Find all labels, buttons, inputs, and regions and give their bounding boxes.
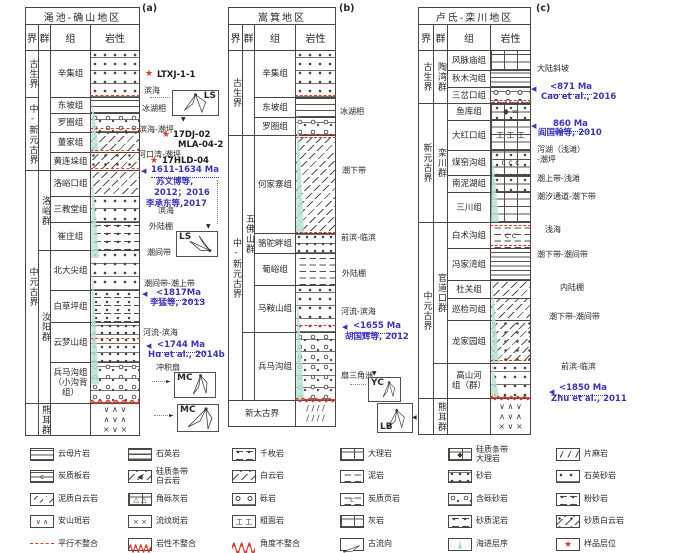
formation-name: 何家寨组 [258, 180, 292, 190]
formation-cell: 马鞍山组 [254, 285, 296, 333]
formation-name: 三川组 [456, 203, 482, 213]
formation-cell: 白术沟组 [447, 222, 491, 249]
section-b-header-formation: 组 [254, 24, 296, 51]
section-a-header-formation: 组 [50, 24, 91, 51]
legend-swatch-argillaceous-dolomite [30, 493, 54, 506]
formation-cell-empty [447, 398, 491, 435]
lithology-box [90, 97, 140, 114]
legend-swatch-carbonaceous-slate: c [30, 470, 54, 483]
legend-swatch-paleocurrent [340, 538, 364, 551]
lithology-box: ◆ ∞ [490, 103, 531, 121]
formation-cell: 黄连垛组 [50, 152, 91, 171]
group-cell: 栾川群 [433, 103, 448, 223]
legend-label: 炭质板岩 [58, 472, 90, 481]
formation-cell: 何家寨组 [254, 135, 296, 234]
section-c-header-era: 界 [418, 24, 434, 51]
legend-label: 砂岩 [476, 472, 492, 481]
legend-swatch-glyph: ◆ [449, 449, 471, 460]
facies-label: 潮下带-潮间带 [537, 250, 588, 260]
legend-swatch-mica-schist [30, 448, 54, 461]
formation-name: 三教堂组 [53, 205, 87, 215]
lithology-box [490, 175, 531, 193]
leader-line [154, 415, 168, 416]
era-label: 中-新元古界 [230, 238, 241, 299]
panel-label-a: (a) [142, 3, 157, 14]
formation-cell: 冯家湾组 [447, 248, 491, 281]
legend-swatch-dolomite [232, 470, 256, 483]
lithology-box [490, 87, 531, 104]
formation-name: 三岔口组 [452, 91, 486, 101]
formation-cell: 兵马沟组 （小沟背组） [50, 362, 91, 404]
formation-name: 冯家湾组 [452, 260, 486, 270]
formation-cell: 骆驼畔组 [254, 233, 296, 254]
facies-label: 潮下带-潮间带 [549, 312, 600, 322]
formation-name: 秋木沟组 [452, 74, 486, 84]
formation-name: 风脉庙组 [452, 56, 486, 66]
paleocurrent-rose-box: LS [176, 231, 218, 257]
legend-swatch-glyph: 工 工 [233, 516, 255, 527]
formation-cell: 风脉庙组 [447, 50, 491, 71]
legend-label: 片麻岩 [584, 450, 608, 459]
group-label: 洛峪群 [39, 196, 50, 226]
legend-label: 安山斑岩 [58, 517, 90, 526]
legend-label: 砾岩 [260, 495, 276, 504]
section-c-title: 卢氏-栾川地区 [418, 7, 531, 25]
formation-cell: 鱼库组 [447, 103, 491, 121]
legend-swatch-sandstone [448, 470, 472, 483]
formation-name: 东坡组 [262, 103, 288, 113]
section-c-header-formation: 组 [447, 24, 491, 51]
legend-swatch-glyph: c [31, 471, 53, 482]
reference-label: Hu et al., 2014b [148, 351, 225, 361]
formation-name: 崔庄组 [58, 232, 84, 242]
formation-name: 高山河 组（群） [452, 371, 486, 391]
formation-name: 煤窑沟组 [452, 158, 486, 168]
section-a-header-era: 界 [25, 24, 39, 51]
parallel-unconformity-line [90, 168, 140, 169]
formation-name: 云梦山组 [53, 338, 87, 348]
era-label: 古生界 [27, 59, 38, 89]
leader-line [217, 180, 218, 224]
age-arrow-icon: ◀ [141, 168, 146, 175]
era-header-label: 界 [231, 30, 241, 45]
legend-swatch-gneiss [556, 448, 580, 461]
legend-swatch-sample-horizon: ★ [556, 538, 580, 551]
panel-label-c: (c) [536, 3, 550, 14]
formation-cell: 崔庄组 [50, 222, 91, 251]
formation-cell: 煤窑沟组 [447, 150, 491, 176]
legend-label: 大理岩 [368, 450, 392, 459]
parallel-unconformity-line [295, 325, 336, 326]
age-arrow-icon: ◀ [531, 123, 536, 130]
lithology-box [490, 298, 531, 321]
facies-label: 浅海 [545, 225, 561, 235]
formation-cell: 兵马沟组 [254, 332, 296, 401]
rose-label: MC [180, 405, 196, 415]
formation-cell: 罗圈组 [50, 113, 91, 133]
rose-arrow-icon: ▼ [372, 371, 377, 377]
paleocurrent-rose-box: LS [172, 90, 219, 116]
era-cell: 古生界 [228, 50, 243, 136]
formation-name: 骆驼畔组 [258, 239, 292, 249]
group-header-label: 群 [244, 30, 254, 45]
formation-name: 兵马沟组 （小沟背组） [51, 368, 90, 398]
group-label: 陶湾群 [435, 62, 446, 92]
lithology-box-volcanic: ∨ ∧ ∨ ∧ ∨ ∧ × ∨ × [90, 403, 140, 436]
era-label: 中元古界 [421, 291, 432, 331]
volcanic-pattern-glyphs: ∨ ∧ ∨ ∧ ∨ ∧ × ∨ × [91, 404, 139, 435]
paleocurrent-rose-box: MC [174, 372, 216, 398]
legend-swatch-phyllite [232, 448, 256, 461]
legend-label: 泥岩 [368, 472, 384, 481]
formation-name: 南泥湖组 [452, 179, 486, 189]
legend-label: 砂质白云岩 [584, 517, 624, 526]
rose-label: LS [179, 232, 191, 242]
reference-label: Zhu et al., 2011 [551, 395, 627, 405]
rose-label: MC [177, 373, 193, 383]
formation-cell: 白草坪组 [50, 290, 91, 323]
legend-label: 样品层位 [584, 540, 616, 549]
formation-name: 大红口组 [452, 131, 486, 141]
reference-label: 阎国翰等, 2010 [538, 129, 602, 139]
legend-swatch-parallel-unconformity [30, 538, 54, 551]
leader-line [350, 384, 366, 385]
formation-name: 黄连垛组 [53, 157, 87, 167]
facies-label: 潮上带-浅滩 [537, 174, 580, 184]
legend-swatch-sandy-dolomite [556, 515, 580, 528]
sample-label: LTXJ-1-1 [157, 71, 195, 81]
sample-star-icon: ★ [145, 70, 153, 79]
legend-swatch-chert-banded-dolomite: ◀ [128, 470, 152, 483]
legend-swatch-rhyolite-porphyry: × × [128, 515, 152, 528]
legend-label: 流纹斑岩 [156, 517, 188, 526]
lithology-symbols: 工 工 工 [491, 121, 530, 150]
era-cell: 古生界 [418, 50, 434, 104]
section-b-title: 嵩箕地区 [228, 7, 336, 25]
lithology-box [490, 50, 531, 71]
formation-name: 白草坪组 [53, 302, 87, 312]
rose-arrow-icon: ► [166, 379, 171, 385]
formation-name: 董家组 [58, 138, 84, 148]
stratigraphic-correlation-figure: (a) 渑池-确山地区 界 群 组 岩性 古生界 中-新元古界 中元古界 洛峪群… [0, 0, 700, 553]
reference-label: 胡国辉等, 2012 [345, 333, 409, 343]
formation-name: 洛峪口组 [53, 179, 87, 189]
legend-swatch-mudstone [340, 470, 364, 483]
lithology-box [295, 117, 336, 136]
formation-cell: 大红口组 [447, 120, 491, 151]
formation-name: 白术沟组 [452, 231, 486, 241]
basement-cell: 新太古界 [228, 400, 296, 427]
era-label: 中-新元古界 [27, 104, 38, 165]
age-arrow-icon: ◀ [146, 343, 151, 350]
reference-label: 2012；2016 [154, 189, 210, 199]
lithology-header-label: 岩性 [306, 30, 326, 45]
formation-cell: 南泥湖组 [447, 175, 491, 193]
parallel-unconformity-line [90, 95, 140, 96]
parallel-unconformity-line [90, 338, 140, 339]
facies-label: 冰湖相 [142, 104, 166, 114]
formation-cell: 洛峪口组 [50, 170, 91, 197]
era-label: 古生界 [421, 62, 432, 92]
section-c-header-group: 群 [433, 24, 448, 51]
group-label: 熊耳群 [39, 405, 50, 435]
group-cell-empty [433, 363, 448, 399]
lithology-box [90, 170, 140, 197]
age-arrow-icon: ◀ [342, 324, 347, 331]
formation-cell: 三岔口组 [447, 87, 491, 104]
era-label: 古生界 [230, 78, 241, 108]
legend-swatch-limestone [340, 515, 364, 528]
lithology-box: 工 工 工 [490, 120, 531, 151]
facies-label: 前滨-临滨 [561, 362, 596, 372]
group-header-label: 群 [436, 30, 446, 45]
era-cell-empty [25, 403, 39, 436]
facies-label: 潮间带 [147, 248, 171, 258]
section-a-title: 渑池-确山地区 [25, 7, 140, 25]
parallel-unconformity-line [90, 150, 140, 151]
age-label: 1611-1634 Ma [151, 166, 219, 178]
legend-label: 硅质条带 大理岩 [476, 446, 508, 463]
legend-swatch-conglomerate [232, 493, 256, 506]
facies-label: 滨海 [158, 206, 174, 216]
era-cell: 新元古界 [418, 103, 434, 223]
facies-label: 外陆棚 [342, 269, 366, 279]
rose-arrow-icon: ► [169, 413, 174, 419]
formation-header-label: 组 [66, 30, 76, 45]
lithology-box [295, 233, 336, 254]
lithology-box [90, 113, 140, 133]
formation-cell: 东坡组 [50, 97, 91, 114]
legend-label: 含砾砂岩 [476, 495, 508, 504]
rose-label: LS [204, 91, 216, 101]
section-a-title-text: 渑池-确山地区 [44, 9, 122, 24]
legend-label: 平行不整合 [58, 540, 98, 549]
formation-name: 兵马沟组 [258, 362, 292, 372]
formation-cell: 董家组 [50, 132, 91, 153]
angular-unconformity-line [90, 399, 140, 405]
lithology-box [295, 50, 336, 98]
legend-label: 泥质白云岩 [58, 495, 98, 504]
facies-label: 外陆棚 [149, 222, 173, 232]
formation-cell: 辛集组 [254, 50, 296, 98]
legend-swatch-glyph: ∨ ∧ [31, 516, 53, 527]
formation-name: 东坡组 [58, 101, 84, 111]
group-cell: 陶湾群 [433, 50, 448, 104]
legend-label: 古流向 [368, 540, 392, 549]
legend-label: 炭质页岩 [368, 495, 400, 504]
era-cell: 中-新元古界 [228, 135, 243, 401]
formation-name: 鱼库组 [456, 107, 482, 117]
parallel-unconformity-line [90, 128, 140, 129]
lithology-box [90, 322, 140, 363]
lithology-symbols: c c c [491, 151, 530, 175]
legend-label: 角砾灰岩 [156, 495, 188, 504]
formation-name: 辛集组 [58, 69, 84, 79]
legend-swatch-quartzite [128, 448, 152, 461]
formation-cell-empty [50, 403, 91, 436]
parallel-unconformity-line [490, 245, 531, 246]
formation-cell: 巡检司组 [447, 298, 491, 321]
lithology-box-gneiss: / / / / / / / / [295, 400, 336, 427]
reference-label: Cao et al., 2016 [541, 93, 616, 103]
rose-arrow-icon: ▼ [206, 224, 211, 230]
lithology-symbols: ◆ ∞ [491, 104, 530, 120]
section-b-title-text: 嵩箕地区 [258, 9, 306, 24]
legend-swatch-transgressive-sequence [448, 538, 472, 551]
leader-line [152, 381, 165, 382]
formation-cell: 辛集组 [50, 50, 91, 98]
formation-name: 罗圈组 [58, 118, 84, 128]
era-label: 中元古界 [27, 267, 38, 307]
parallel-unconformity-line [490, 100, 531, 101]
lithology-box [90, 290, 140, 323]
era-cell-empty [418, 398, 434, 435]
legend-swatch-glyph: △ △ [129, 494, 151, 505]
facies-label: 冰湖相 [340, 107, 364, 117]
section-c-title-text: 卢氏-栾川地区 [436, 9, 514, 24]
facies-label: 内陆棚 [560, 283, 584, 293]
basement-label: 新太古界 [245, 409, 279, 419]
group-label: 五佛山群 [243, 214, 254, 254]
facies-label: 大陆斜坡 [537, 64, 569, 74]
legend-label: 石英岩 [156, 450, 180, 459]
formation-name: 罗圈组 [262, 122, 288, 132]
formation-cell: 罗圈组 [254, 117, 296, 136]
parallel-unconformity-line [295, 232, 336, 233]
rose-label: YC [371, 378, 384, 388]
facies-label: 河流-滨海 [143, 328, 178, 338]
lithology-box: c c c [490, 150, 531, 176]
era-cell: 古生界 [25, 50, 39, 98]
legend-label: 石英砂岩 [584, 472, 616, 481]
section-a-header-lithology: 岩性 [90, 24, 140, 51]
facies-label: 滨海 [144, 86, 160, 96]
legend-swatch-siltstone [556, 493, 580, 506]
formation-cell: 云梦山组 [50, 322, 91, 363]
formation-cell: 北大尖组 [50, 250, 91, 291]
legend-swatch-quartz-sandstone [556, 470, 580, 483]
sample-star-icon: ★ [557, 539, 579, 550]
volcanic-pattern-glyphs: ∨ ∧ ∨ ∧ ∨ ∧ × ∨ × [491, 399, 530, 434]
section-b-header-lithology: 岩性 [295, 24, 336, 51]
teal-wedge-icon [458, 540, 463, 549]
legend-swatch-breccia-limestone: △ △ [128, 493, 152, 506]
facies-label: 潮下带 [342, 166, 366, 176]
formation-cell: 三教堂组 [50, 196, 91, 223]
sample-star-icon: ★ [162, 131, 170, 140]
parallel-unconformity-line [295, 137, 336, 138]
legend-label: 粉砂岩 [584, 495, 608, 504]
formation-cell: 龙家园组 [447, 320, 491, 364]
formation-name: 杜关组 [456, 285, 482, 295]
paleocurrent-rose-box: LB [377, 403, 413, 433]
legend-swatch-angular-unconformity [232, 538, 256, 551]
leader-line [150, 97, 170, 98]
legend-label: 粗面岩 [260, 517, 284, 526]
rose-arrow-icon: ◀ [412, 415, 417, 421]
era-header-label: 界 [27, 30, 37, 45]
section-c-header-lithology: 岩性 [490, 24, 531, 51]
facies-label: 河流-滨海 [341, 307, 376, 317]
formation-cell: 三川组 [447, 192, 491, 223]
lithology-box [90, 196, 140, 223]
legend-label: 硅质条带 白云岩 [156, 468, 188, 485]
parallel-unconformity-line [490, 225, 531, 226]
paleocurrent-fan-icon [341, 543, 363, 553]
legend-swatch-pebbly-sandstone [448, 493, 472, 506]
sample-label: MLA-04-2 [178, 141, 223, 151]
group-label: 汝阳群 [39, 312, 50, 342]
parallel-unconformity-line [490, 360, 531, 361]
formation-name: 北大尖组 [53, 266, 87, 276]
group-label: 熊耳群 [435, 402, 446, 432]
legend-label: 砂质泥岩 [476, 517, 508, 526]
legend-swatch-lithologic-unconformity [128, 538, 152, 551]
formation-name: 龙家园组 [452, 337, 486, 347]
reference-label: 李猛等, 2013 [150, 299, 205, 309]
paleocurrent-rose-box: YC [368, 377, 401, 402]
red-wavy-line [232, 540, 256, 553]
legend-swatch-glyph: × × [129, 516, 151, 527]
formation-cell: 高山河 组（群） [447, 363, 491, 399]
formation-name: 马鞍山组 [258, 304, 292, 314]
legend-swatch-chert-banded-marble: ◆ [448, 448, 472, 461]
red-wavy-line [129, 543, 151, 553]
lithology-box-volcanic: ∨ ∧ ∨ ∧ ∨ ∧ × ∨ × [490, 398, 531, 435]
formation-header-label: 组 [270, 30, 280, 45]
facies-label: 潮汐通道-潮下带 [537, 192, 596, 202]
reference-label: 李承东等,2017 [146, 200, 207, 210]
angular-unconformity-line [295, 397, 336, 403]
formation-name: 辛集组 [262, 69, 288, 79]
legend-label: 岩性不整合 [156, 540, 196, 549]
facies-label: 泻湖（浅滩） -潮坪 [537, 145, 585, 164]
formation-cell: 杜关组 [447, 280, 491, 299]
lithology-box [490, 70, 531, 88]
lithology-header-label: 岩性 [501, 30, 521, 45]
legend-label: 角度不整合 [260, 540, 300, 549]
era-cell: 中元古界 [418, 222, 434, 399]
age-arrow-icon: ◀ [531, 86, 536, 93]
formation-header-label: 组 [464, 30, 474, 45]
legend-swatch-carbonaceous-shale: c [340, 493, 364, 506]
formation-name: 葡峪组 [262, 265, 288, 275]
formation-name: 巡检司组 [452, 305, 486, 315]
lithology-box [90, 50, 140, 98]
lithology-box [295, 97, 336, 118]
legend-swatch-marble [340, 448, 364, 461]
legend-swatch-glyph: c [341, 494, 363, 505]
section-b-header-era: 界 [228, 24, 243, 51]
legend-label: 海进层序 [476, 540, 508, 549]
formation-cell: 秋木沟组 [447, 70, 491, 88]
lithology-box [295, 253, 336, 286]
era-label: 新元古界 [421, 143, 432, 183]
legend-label: 白云岩 [260, 472, 284, 481]
lithology-header-label: 岩性 [105, 30, 125, 45]
lithology-box [490, 280, 531, 299]
formation-cell: 葡峪组 [254, 253, 296, 286]
group-label: 官道口群 [435, 273, 446, 313]
red-dashed-line [30, 543, 54, 544]
rose-arrow-icon: ▼ [181, 117, 186, 123]
legend-swatch-sandy-mudstone [448, 515, 472, 528]
formation-cell: 东坡组 [254, 97, 296, 118]
age-arrow-icon: ◀ [142, 291, 147, 298]
lithology-box [490, 248, 531, 281]
group-cell: 熊耳群 [433, 398, 448, 435]
group-label: 栾川群 [435, 148, 446, 178]
